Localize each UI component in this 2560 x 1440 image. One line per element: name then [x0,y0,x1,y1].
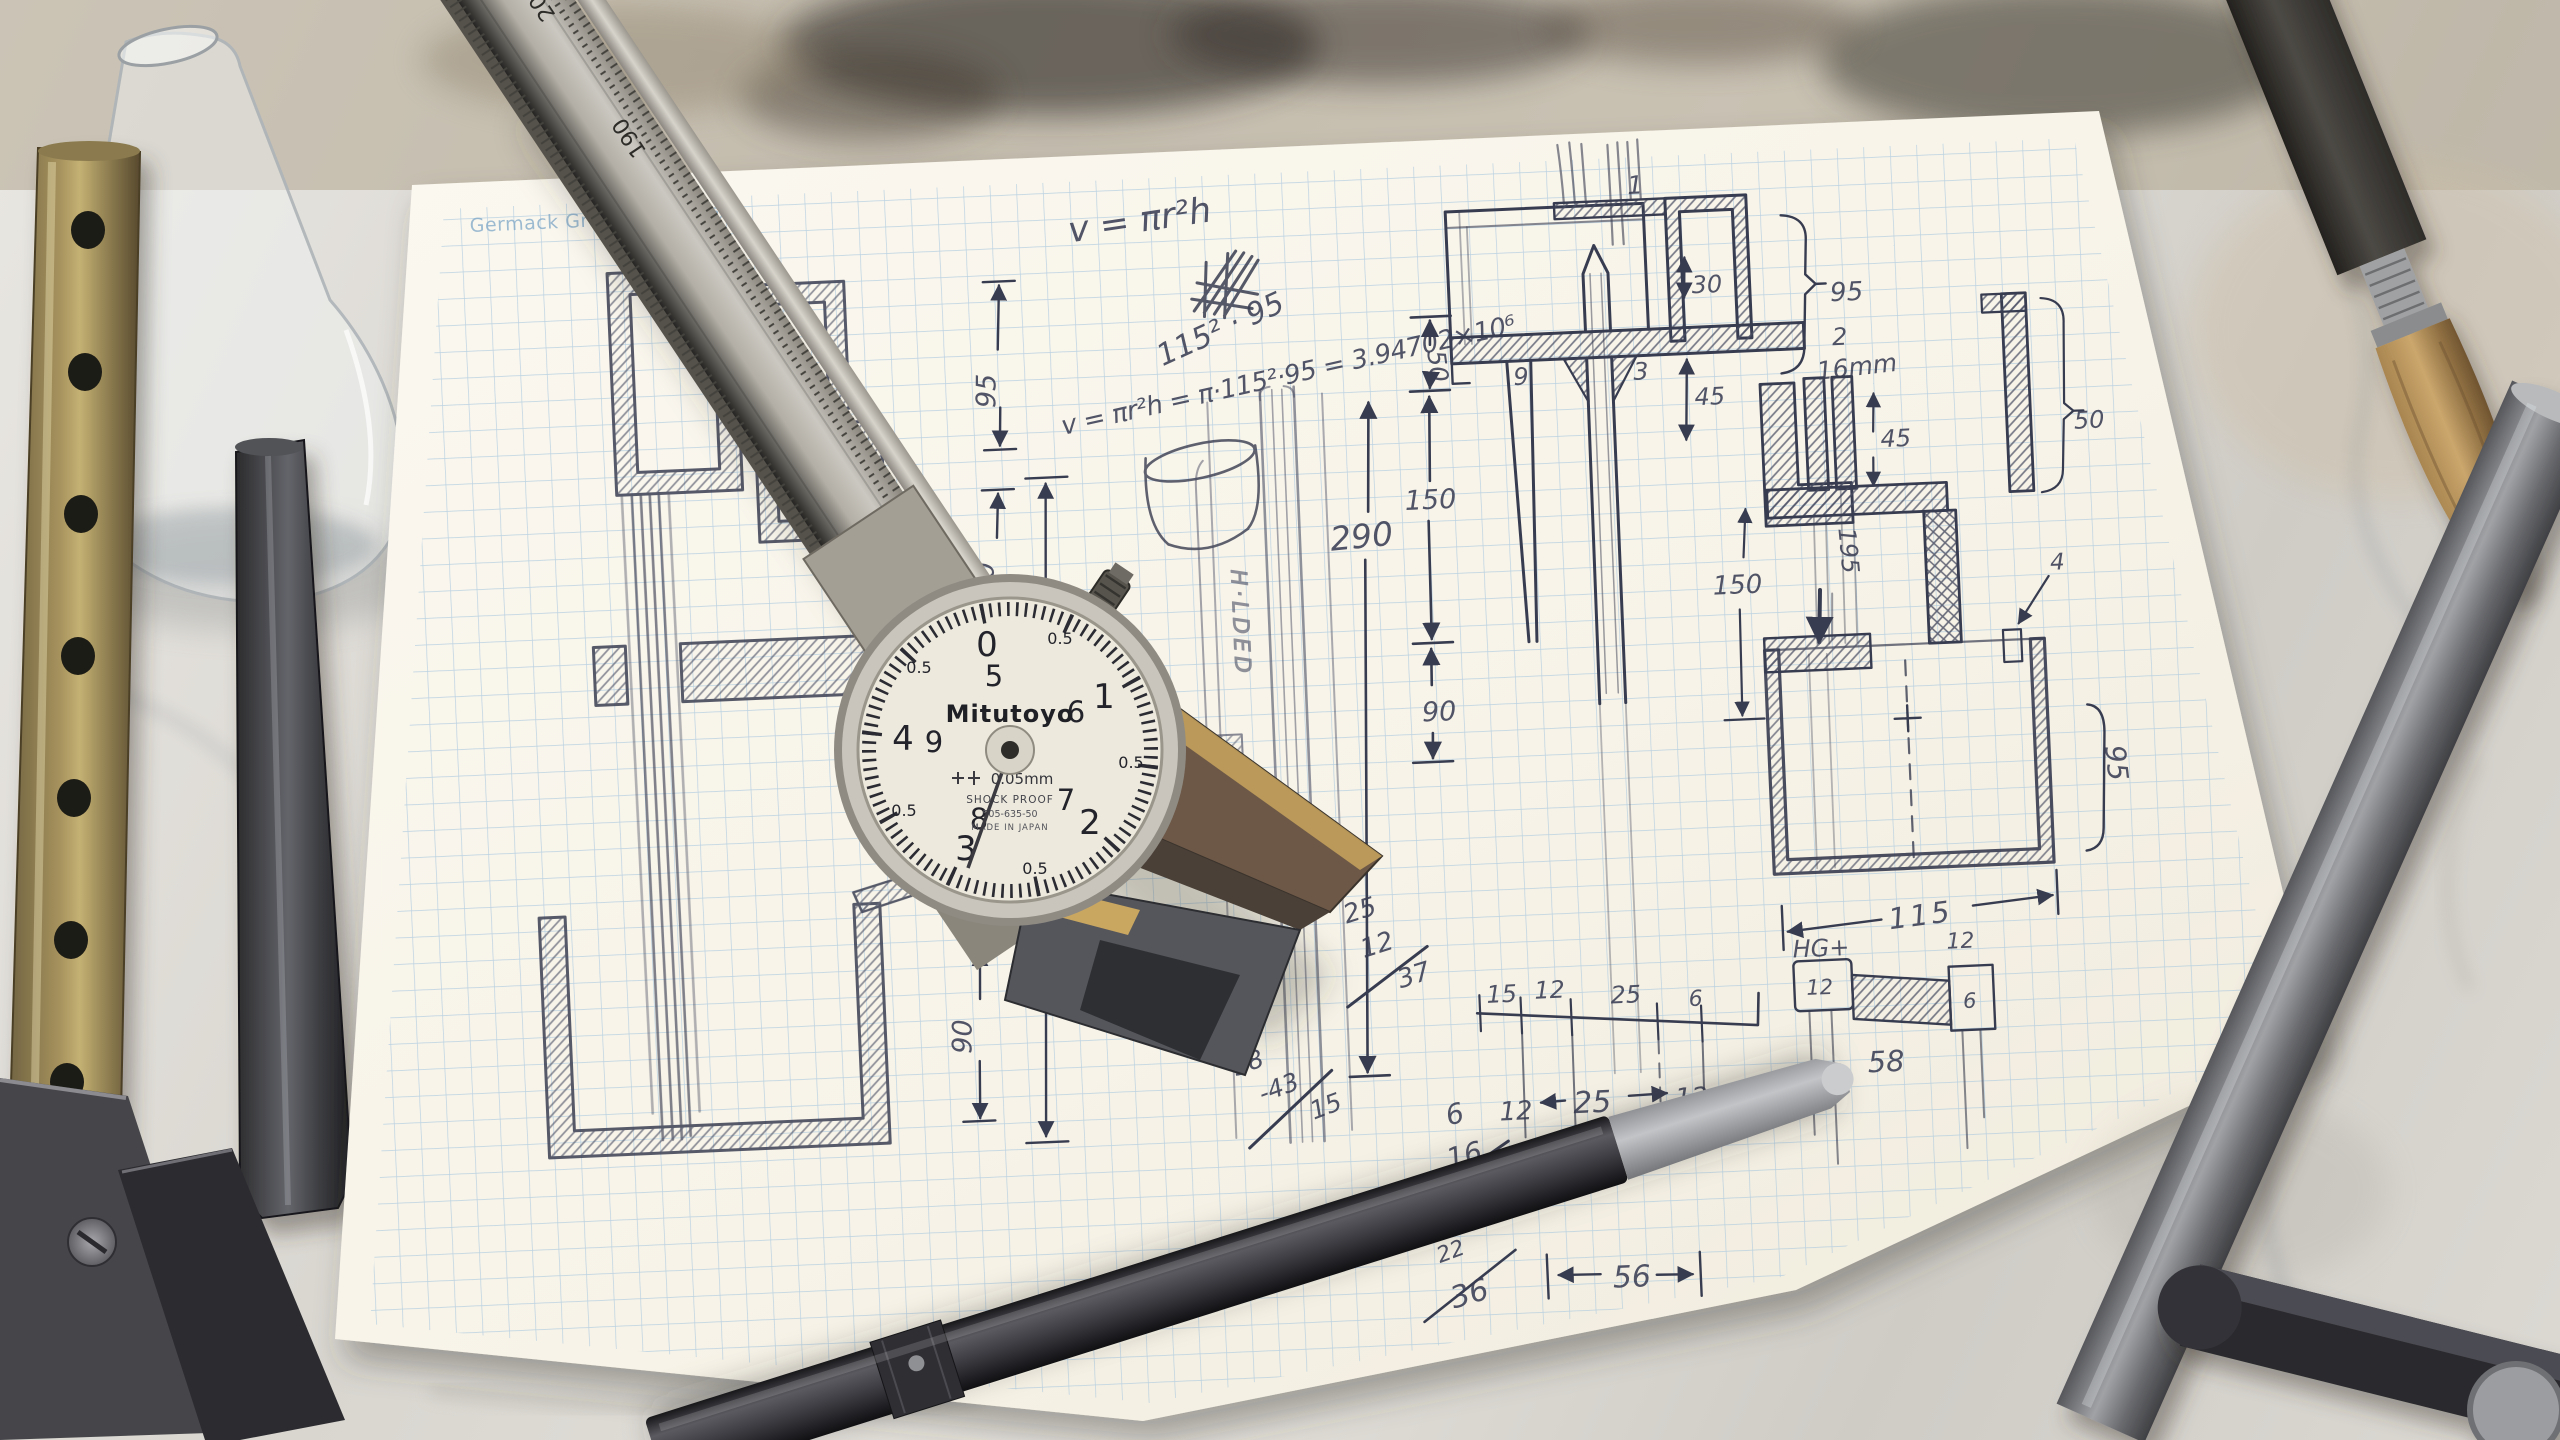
row-12: 12 [1534,975,1566,1004]
label-part2: 2 [1831,323,1847,352]
dim-mid-150: 150 [1404,484,1457,517]
right-mid-bar [1767,482,1948,518]
dial-shockproof: SHOCK PROOF [966,794,1054,806]
note-vertical: H·LDED [1225,569,1255,678]
dim-piston-wall: 95 [1829,277,1863,308]
label-58: 58 [1867,1044,1905,1080]
cell-6: 6 [1963,989,1977,1014]
dim-left-90: 90 [947,1019,978,1054]
dim-right-50: 50 [2073,405,2105,434]
dial-brand: Mitutoyo [946,700,1075,728]
row2-12l: 12 [1499,1096,1533,1127]
dial-1: 1 [1093,677,1115,717]
dial-half: 0.5 [1118,753,1143,772]
dim-piston-30: 30 [1691,270,1723,299]
dial-7: 7 [1057,783,1075,817]
row2-25: 25 [1572,1085,1612,1122]
dial-4: 4 [892,719,914,759]
dial-hub-center [1001,741,1019,759]
dial-half: 0.5 [891,801,916,820]
row-15: 15 [1486,980,1518,1009]
row-6: 6 [1688,986,1703,1012]
row-25: 25 [1610,980,1642,1009]
cell-12b: 12 [1946,929,1975,955]
corner-bar [2149,1257,2560,1440]
dial-9: 9 [925,725,943,759]
label-part3: 3 [1633,357,1649,386]
workbench-scene: Germack Graph Papers ® 95 50 [0,0,2560,1440]
dim-box-95: 95 [2098,743,2135,782]
dial-half: 0.5 [906,658,931,677]
dial-half: 0.5 [1047,629,1072,648]
label-part9: 9 [1513,362,1529,391]
right-pillar [1924,510,1962,643]
corner-rod-end [2470,1364,2560,1440]
dim-mid-290: 290 [1328,514,1394,559]
dim-mid-90: 90 [1421,696,1457,728]
label-part4: 4 [2049,549,2065,576]
dial-5: 5 [985,659,1003,693]
marble-vein [2447,760,2480,990]
dial-model: 505-635-50 [982,809,1037,820]
dim-right-195: 195 [1832,526,1864,574]
punch-top-face [235,438,303,456]
dial-half: 0.5 [1022,859,1047,878]
dim-piston-45: 45 [1694,382,1726,411]
dial-indicator: 0 1 2 3 4 5 6 7 8 9 0.5 0.5 0.5 0.5 0.5 … [834,574,1186,926]
cell-12a: 12 [1806,975,1834,1000]
dim-56: 56 [1612,1259,1652,1296]
dim-right-45: 45 [1880,424,1912,453]
flask-base-shade [95,507,375,583]
dim-mid-50: 50 [1421,348,1454,383]
label-part1: 1 [1627,170,1644,200]
dial-2: 2 [1079,803,1101,843]
brass-top-face [38,141,140,161]
dim-left-95: 95 [971,374,1002,409]
dim-right-150: 150 [1712,569,1763,601]
